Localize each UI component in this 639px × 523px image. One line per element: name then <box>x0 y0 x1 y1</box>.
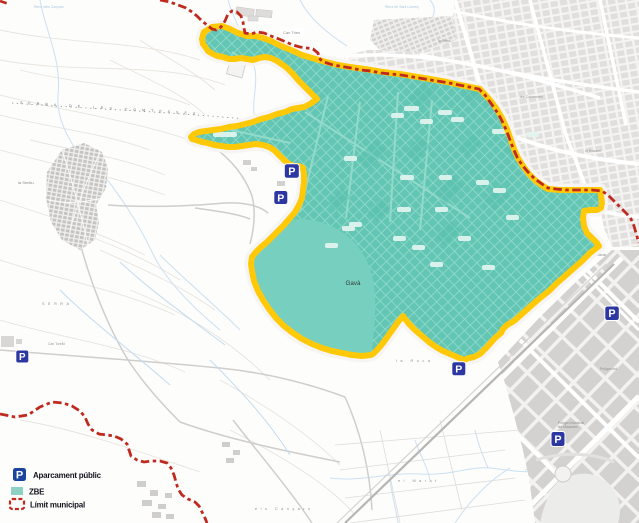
svg-text:les Massotes: les Massotes <box>558 425 578 429</box>
svg-text:P: P <box>19 352 26 363</box>
svg-text:P: P <box>288 166 295 178</box>
svg-text:Riera dels Canyars: Riera dels Canyars <box>34 5 64 9</box>
svg-text:SERRA: SERRA <box>42 302 73 306</box>
svg-text:la Roca: la Roca <box>396 359 433 363</box>
svg-text:Riera de Sant Llorenç: Riera de Sant Llorenç <box>385 5 419 9</box>
svg-text:els Canyars: els Canyars <box>255 507 314 511</box>
svg-text:P: P <box>554 434 561 446</box>
svg-text:P: P <box>277 192 284 204</box>
svg-text:el Marat: el Marat <box>398 479 440 483</box>
svg-text:el Rosaret: el Rosaret <box>585 149 601 153</box>
svg-text:la Sentiu: la Sentiu <box>18 180 34 185</box>
svg-text:Gavà: Gavà <box>346 280 362 287</box>
svg-text:Can Torelló: Can Torelló <box>48 342 65 346</box>
svg-text:ZBE: ZBE <box>29 488 45 497</box>
svg-text:P: P <box>16 470 23 482</box>
svg-text:les Colomeres: les Colomeres <box>520 95 543 99</box>
svg-text:Can Tries: Can Tries <box>283 30 300 35</box>
svg-text:Polígon ind.: Polígon ind. <box>600 367 618 371</box>
svg-text:P: P <box>455 364 462 376</box>
svg-text:P: P <box>608 308 615 320</box>
svg-text:Aparcament públic: Aparcament públic <box>33 471 102 480</box>
svg-text:Límit municipal: Límit municipal <box>30 501 85 510</box>
svg-text:la Riera: la Riera <box>438 39 450 43</box>
